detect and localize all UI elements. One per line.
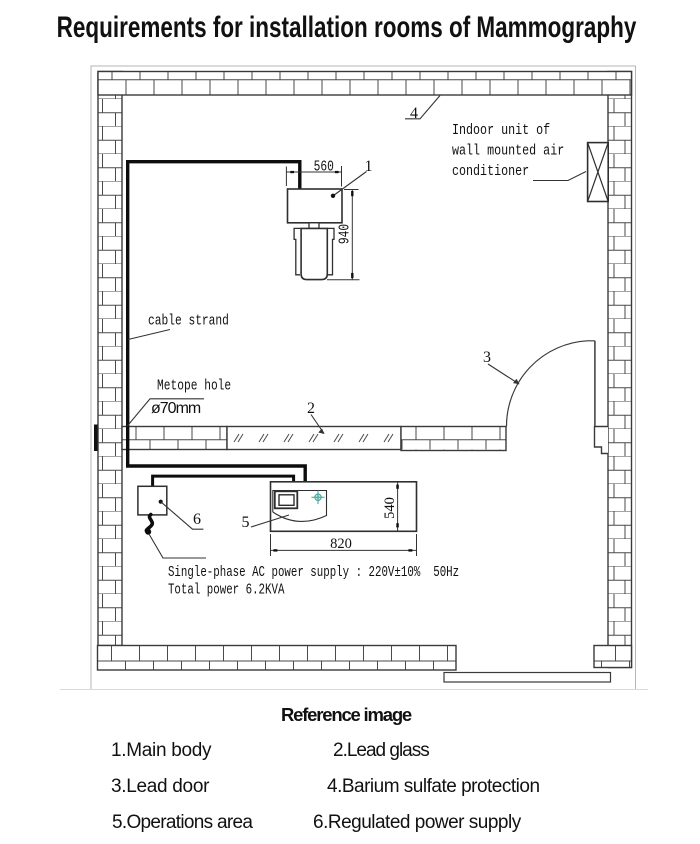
svg-text:Indoor unit of: Indoor unit of — [452, 123, 550, 140]
svg-text:2.Lead glass: 2.Lead glass — [333, 740, 429, 761]
svg-text:1.Main body: 1.Main body — [111, 740, 212, 761]
svg-text:Metope hole: Metope hole — [157, 377, 231, 394]
svg-text:Reference image: Reference image — [281, 704, 412, 725]
svg-text:Total power 6.2KVA: Total power 6.2KVA — [168, 581, 285, 598]
svg-text:940: 940 — [336, 224, 353, 244]
svg-text:Single-phase AC power supply :: Single-phase AC power supply : 220V±10% … — [168, 563, 459, 580]
svg-text:conditioner: conditioner — [452, 164, 529, 181]
svg-text:4.Barium sulfate protection: 4.Barium sulfate protection — [327, 776, 540, 797]
svg-text:Requirements for installation: Requirements for installation rooms of M… — [57, 10, 637, 44]
svg-text:6: 6 — [193, 511, 201, 528]
svg-text:560: 560 — [314, 158, 334, 175]
svg-text:540: 540 — [382, 497, 398, 519]
svg-text:3: 3 — [483, 349, 491, 366]
svg-text:2: 2 — [307, 400, 315, 417]
svg-text:5: 5 — [242, 514, 250, 531]
svg-text:820: 820 — [330, 536, 352, 552]
svg-text:cable strand: cable strand — [148, 312, 229, 329]
svg-text:6.Regulated power supply: 6.Regulated power supply — [313, 812, 522, 833]
svg-text:4: 4 — [410, 105, 418, 122]
svg-text:wall mounted air: wall mounted air — [452, 143, 564, 160]
svg-text:3.Lead door: 3.Lead door — [111, 776, 210, 797]
svg-text:ø70mm: ø70mm — [151, 400, 201, 417]
svg-text:5.Operations area: 5.Operations area — [112, 812, 253, 833]
